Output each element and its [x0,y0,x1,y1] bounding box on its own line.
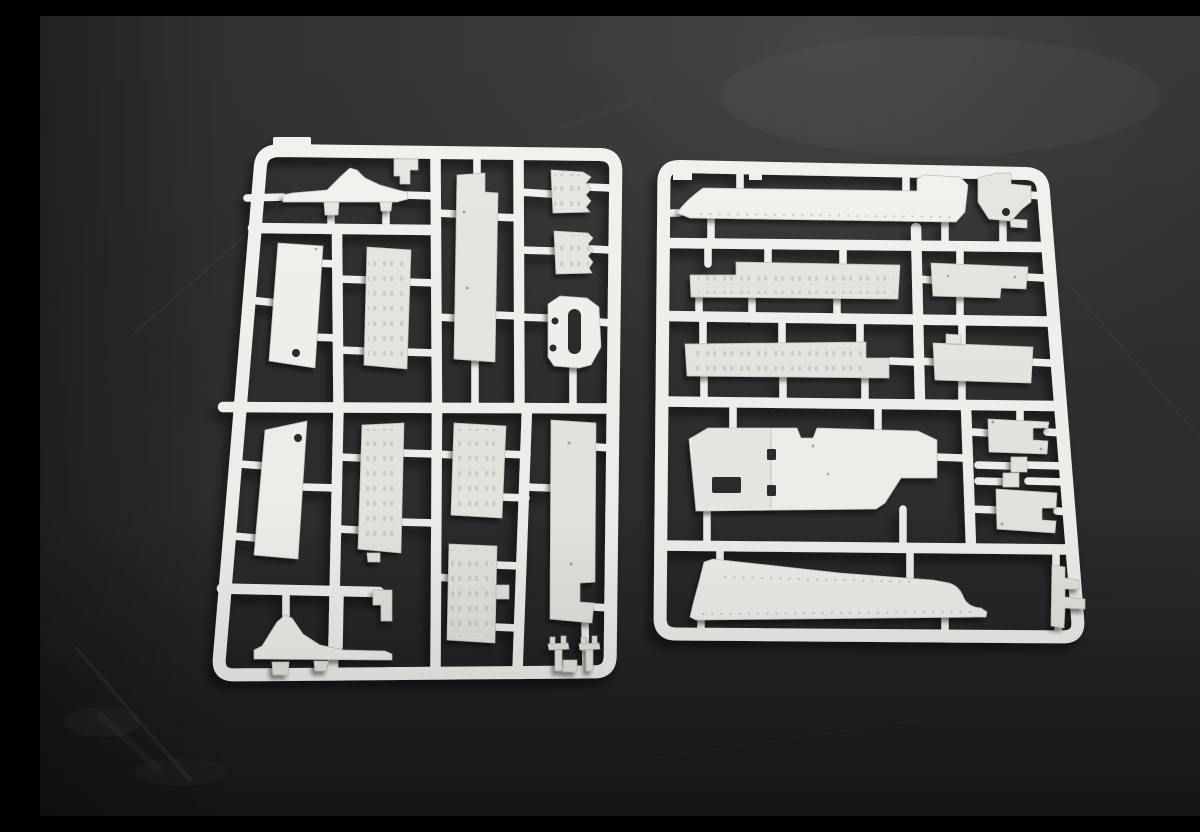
photo-canvas [40,16,1200,816]
sprue-photo: Two white polystyrene model-kit sprues (… [40,16,1200,816]
vignette-overlay [40,16,1200,816]
